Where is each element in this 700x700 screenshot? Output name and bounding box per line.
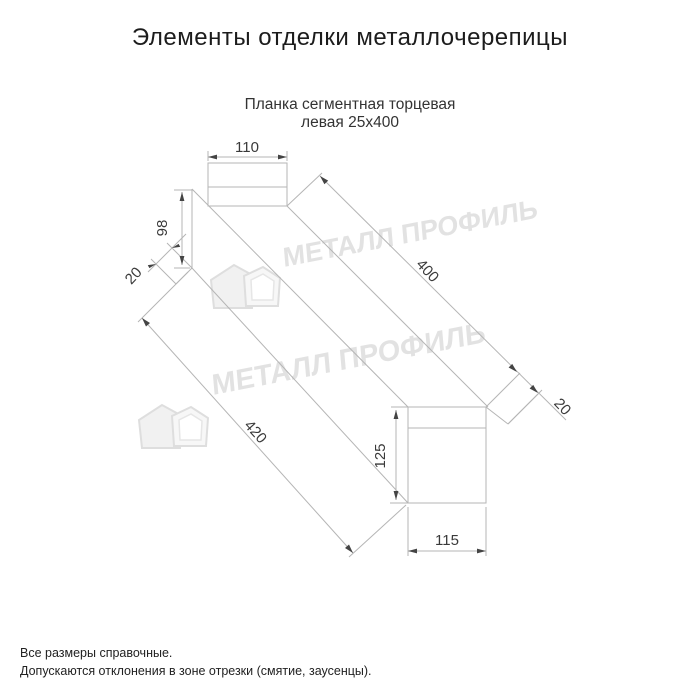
dim-bottom-flange-width: 115 [435, 532, 459, 549]
dim-top-edge-length: 400 [413, 256, 443, 286]
strip-top-edge [287, 206, 488, 407]
dimension-labels: 110 98 20 400 20 420 125 115 [122, 139, 574, 549]
dim-top-flange-width: 110 [235, 139, 259, 156]
technical-drawing: 110 98 20 400 20 420 125 115 [0, 0, 700, 700]
dimension-lines [138, 151, 566, 557]
dim-left-fold: 20 [122, 264, 146, 288]
dim-bottom-edge-length: 420 [241, 417, 270, 447]
footer-note-1: Все размеры справочные. [20, 646, 172, 660]
right-end-edge [486, 407, 508, 424]
drawing-page: Элементы отделки металлочерепицы Планка … [0, 0, 700, 700]
strip-middle-edge [192, 189, 408, 407]
profile-outline [176, 163, 538, 503]
dim-right-fold: 20 [550, 395, 574, 419]
footer-note-2: Допускаются отклонения в зоне отрезки (с… [20, 664, 372, 678]
left-end-top-flange [208, 163, 287, 206]
right-end-flange [408, 407, 486, 503]
dim-right-end-height: 125 [372, 443, 389, 468]
dim-left-end-height: 98 [154, 220, 171, 237]
dimension-arrows [142, 155, 538, 554]
